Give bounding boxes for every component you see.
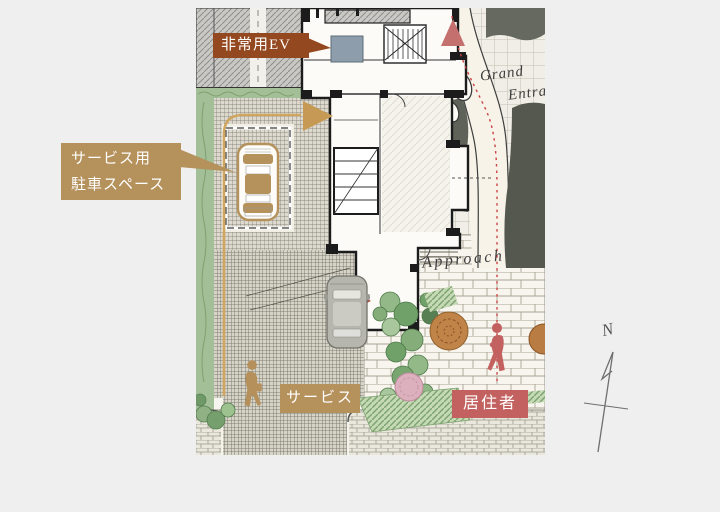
site-plan-page: Grand Entrance Approach 非常用EV サービス用 駐車スペ… [0, 0, 720, 512]
service-parking-callout-line1: サービス用 [71, 146, 181, 172]
resident-callout: 居住者 [452, 390, 528, 418]
main-hall-room [382, 96, 450, 232]
plan-drawing [194, 8, 559, 455]
service-car-icon [238, 144, 278, 220]
site-plan-svg [0, 0, 720, 512]
elevator-core [334, 148, 378, 214]
north-compass-icon [584, 352, 628, 452]
emergency-elevator-unit [331, 36, 363, 62]
orange-tree-right [529, 324, 559, 354]
guest-car-icon [324, 276, 370, 348]
service-parking-callout: サービス用 駐車スペース [61, 143, 181, 200]
pink-flower-bush [395, 373, 423, 401]
service-parking-callout-line2: 駐車スペース [71, 172, 181, 198]
service-callout: サービス [280, 384, 360, 413]
stairs [384, 25, 426, 63]
orange-tree [430, 312, 468, 350]
emergency-ev-callout: 非常用EV [213, 33, 309, 58]
